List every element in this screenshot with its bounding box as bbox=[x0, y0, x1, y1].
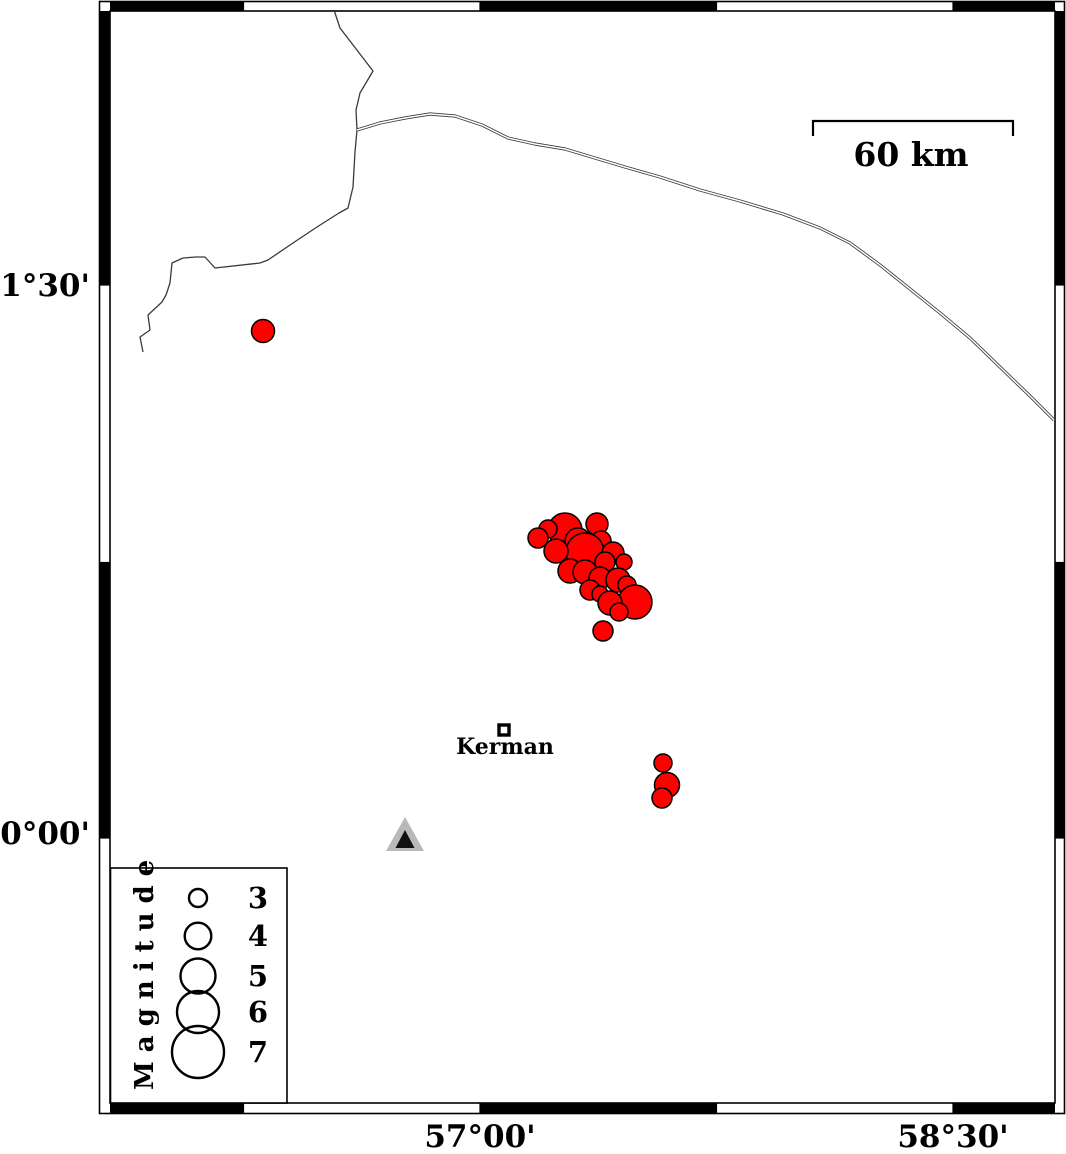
earthquake-circle bbox=[654, 754, 672, 772]
legend-magnitude-value: 7 bbox=[248, 1035, 268, 1069]
map-canvas: Kerman 60 km Magnitude34567 31°30'30°00'… bbox=[0, 0, 1066, 1154]
frame-segment-left bbox=[100, 11, 111, 285]
legend-magnitude-value: 3 bbox=[248, 881, 268, 915]
earthquake-circle bbox=[610, 603, 628, 621]
longitude-label: 57°00' bbox=[424, 1119, 535, 1154]
legend-magnitude-value: 6 bbox=[248, 995, 268, 1029]
earthquake-circle bbox=[652, 788, 672, 808]
boundary-line bbox=[140, 10, 373, 352]
earthquake-circle bbox=[593, 621, 613, 641]
earthquake-circle bbox=[252, 320, 275, 343]
scale-bar-label: 60 km bbox=[853, 135, 968, 174]
frame-segment-bottom bbox=[110, 1103, 244, 1114]
frame-segment-top bbox=[110, 2, 244, 12]
frame-segment-left bbox=[100, 563, 111, 839]
fault-river-lines bbox=[140, 10, 1054, 420]
longitude-label: 58°30' bbox=[897, 1119, 1008, 1154]
latitude-label: 30°00' bbox=[0, 816, 90, 852]
frame-segment-right bbox=[1055, 11, 1065, 285]
magnitude-legend: Magnitude34567 bbox=[111, 851, 288, 1103]
frame-segment-bottom bbox=[953, 1103, 1055, 1114]
legend-title: Magnitude bbox=[130, 851, 160, 1090]
earthquake-circle bbox=[544, 539, 568, 563]
legend-magnitude-value: 4 bbox=[248, 919, 268, 953]
frame-segment-top bbox=[953, 2, 1055, 12]
map-symbols: Kerman bbox=[386, 725, 554, 851]
city-label: Kerman bbox=[456, 734, 554, 760]
latitude-label: 31°30' bbox=[0, 268, 90, 304]
scale-bar-bracket bbox=[813, 121, 1013, 136]
city-square-marker bbox=[499, 725, 509, 735]
earthquake-map-figure: Kerman 60 km Magnitude34567 31°30'30°00'… bbox=[0, 0, 1066, 1154]
scale-bar: 60 km bbox=[813, 121, 1013, 174]
frame-segment-right bbox=[1055, 563, 1065, 839]
legend-magnitude-value: 5 bbox=[248, 959, 268, 993]
frame-segment-top bbox=[480, 2, 717, 12]
frame-segment-bottom bbox=[480, 1103, 717, 1114]
